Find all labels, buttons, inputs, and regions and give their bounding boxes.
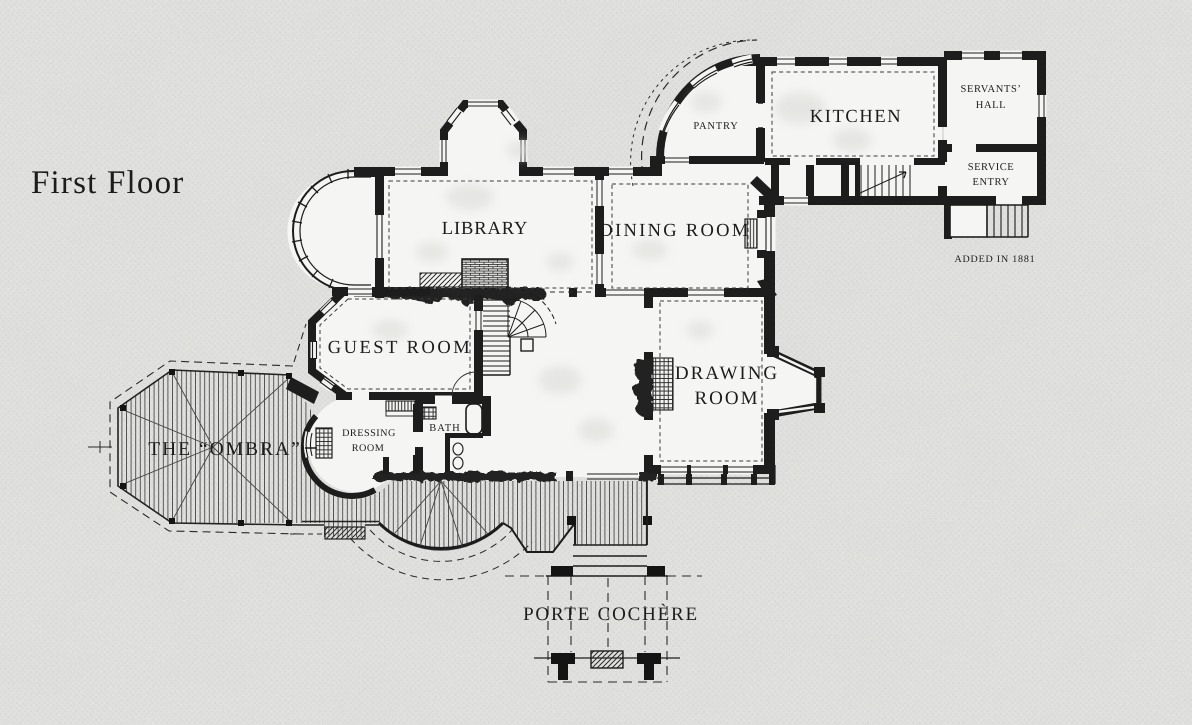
svg-text:GUEST ROOM: GUEST ROOM [328, 338, 472, 358]
svg-text:ROOM: ROOM [694, 388, 759, 409]
svg-text:DRESSING: DRESSING [342, 428, 396, 439]
svg-text:DRAWING: DRAWING [675, 363, 779, 384]
svg-text:THE “OMBRA”: THE “OMBRA” [148, 439, 302, 460]
svg-text:PANTRY: PANTRY [693, 121, 738, 132]
svg-text:BATH: BATH [429, 423, 460, 434]
svg-text:SERVANTS’: SERVANTS’ [961, 84, 1022, 95]
svg-text:PORTE COCHÈRE: PORTE COCHÈRE [523, 603, 699, 625]
svg-text:First Floor: First Floor [31, 165, 184, 201]
svg-text:HALL: HALL [976, 100, 1006, 111]
svg-text:KITCHEN: KITCHEN [810, 107, 902, 127]
svg-text:ADDED IN 1881: ADDED IN 1881 [955, 254, 1036, 265]
svg-text:DINING ROOM: DINING ROOM [599, 221, 750, 241]
svg-text:SERVICE: SERVICE [968, 162, 1014, 173]
svg-text:ROOM: ROOM [352, 443, 385, 454]
svg-text:ENTRY: ENTRY [973, 177, 1010, 188]
svg-text:LIBRARY: LIBRARY [442, 219, 528, 239]
